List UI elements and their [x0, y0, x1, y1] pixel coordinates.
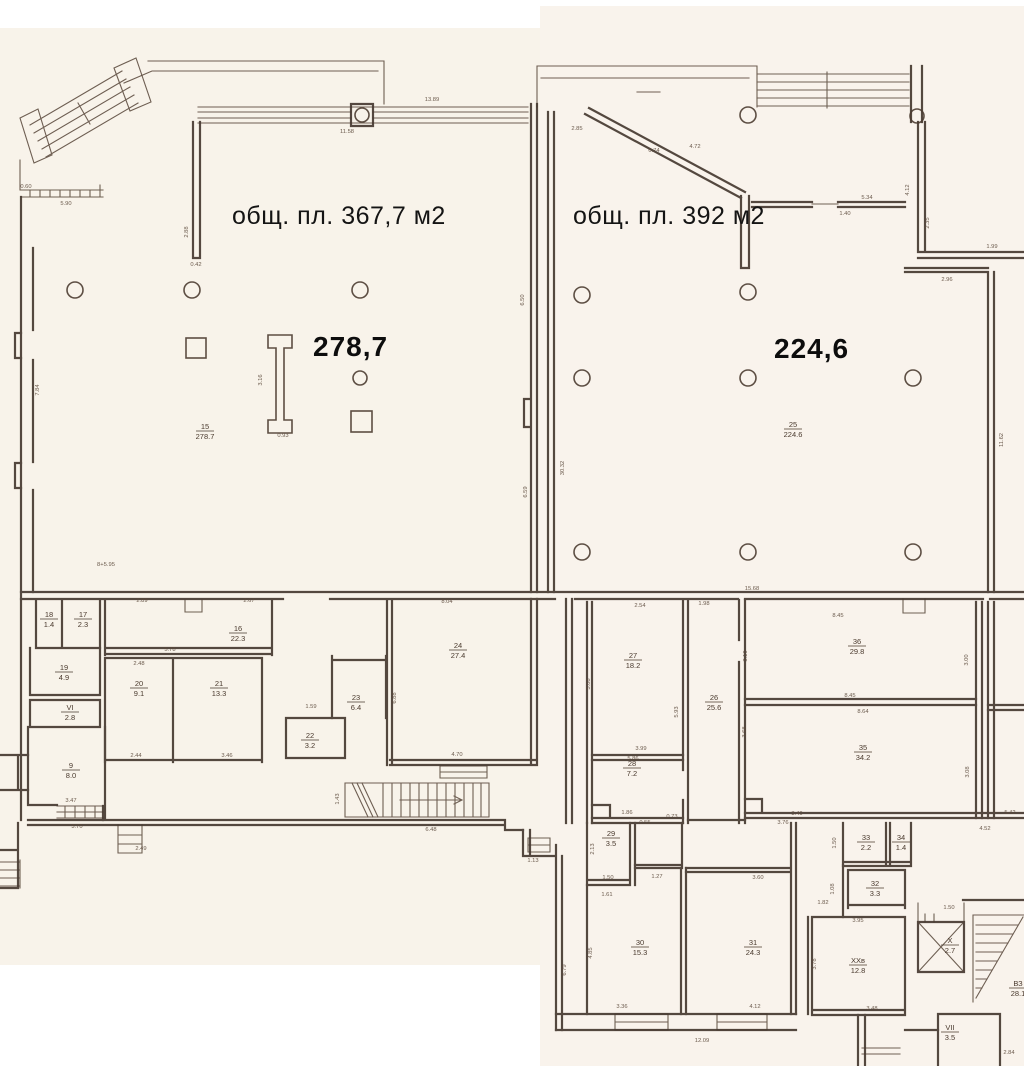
- room-area: 3.2: [305, 741, 315, 750]
- room-area: 1.4: [44, 620, 54, 629]
- room-number: 36: [853, 637, 861, 646]
- room-area: 224.6: [784, 430, 803, 439]
- dimension-label: 5.78: [164, 647, 175, 653]
- dimension-label: 1.50: [943, 905, 954, 911]
- dimension-label: 6.50: [520, 294, 526, 305]
- dimension-label: 2.49: [135, 846, 146, 852]
- room-number: 15: [201, 422, 209, 431]
- dimension-label: 4.12: [905, 184, 911, 195]
- dimension-label: 3.95: [852, 918, 863, 924]
- room-number: 30: [636, 938, 644, 947]
- room-area: 29.8: [850, 647, 865, 656]
- dimension-label: 3.76: [777, 820, 788, 826]
- room-area: 18.2: [626, 661, 641, 670]
- room-number: 19: [60, 663, 68, 672]
- room-number: VII: [945, 1023, 954, 1032]
- room-number: 23: [352, 693, 360, 702]
- dimension-label: 7.84: [35, 384, 41, 396]
- dimension-label: 13.89: [425, 97, 440, 103]
- room-number: ВЗ: [1013, 979, 1023, 988]
- dimension-label: 0.93: [277, 433, 288, 439]
- room-area: 3.5: [606, 839, 616, 848]
- dimension-label: 8.04: [441, 599, 453, 605]
- dimension-label: 6.79: [562, 964, 568, 975]
- dimension-label: 0.73: [666, 814, 677, 820]
- dimension-label: 1.08: [830, 883, 836, 894]
- room-number: 24: [454, 641, 462, 650]
- dimension-label: 4.12: [749, 1004, 760, 1010]
- dimension-label: 2.96: [941, 277, 952, 283]
- room-number: 17: [79, 610, 87, 619]
- room-number: 16: [234, 624, 242, 633]
- room-number: 27: [629, 651, 637, 660]
- dimension-label: 1.50: [602, 875, 613, 881]
- dimension-label: 2.88: [184, 226, 190, 237]
- dimension-label: 4.70: [451, 752, 462, 758]
- room-area: 4.9: [59, 673, 69, 682]
- dimension-label: 1.50: [832, 837, 838, 848]
- dimension-label: 3.48: [866, 1006, 877, 1012]
- room-area: 3.3: [870, 889, 880, 898]
- dimension-label: 3.00: [964, 654, 970, 665]
- room-area: 8.0: [66, 771, 76, 780]
- dimension-label: 2.54: [634, 603, 646, 609]
- dimension-label: 5.90: [60, 201, 71, 207]
- room-area: 3.5: [945, 1033, 955, 1042]
- dimension-label: 1.40: [839, 211, 850, 217]
- dimension-label: 4.52: [979, 826, 990, 832]
- room-area: 22.3: [231, 634, 246, 643]
- room-number: 32: [871, 879, 879, 888]
- dimension-label: 11.62: [999, 433, 1005, 447]
- dimension-label: 3.70: [71, 824, 82, 830]
- dimension-label: 8+5.95: [97, 562, 115, 568]
- room-number: 9: [69, 761, 73, 770]
- room-number: 18: [45, 610, 53, 619]
- room-number: 25: [789, 420, 797, 429]
- dimension-label: 1.27: [651, 874, 662, 880]
- room-number: 35: [859, 743, 867, 752]
- dimension-label: 1.82: [817, 900, 828, 906]
- floor-plan-svg: общ. пл. 367,7 м2 общ. пл. 392 м2 278,7 …: [0, 0, 1024, 1066]
- dimension-label: 3.60: [752, 875, 763, 881]
- dimension-label: 2.67: [243, 598, 254, 604]
- dimension-label: 1.43: [335, 793, 341, 804]
- right-hall-area-label: общ. пл. 392 м2: [573, 202, 765, 230]
- dimension-label: 6.88: [392, 692, 398, 703]
- dimension-label: 2.48: [133, 661, 144, 667]
- dimension-label: 1.86: [621, 810, 632, 816]
- dimension-label: 5.86: [627, 756, 638, 762]
- dimension-label: 11.58: [340, 129, 354, 135]
- dimension-label: 3.99: [635, 746, 646, 752]
- floor-plan-page: общ. пл. 367,7 м2 общ. пл. 392 м2 278,7 …: [0, 0, 1024, 1066]
- room-number: 22: [306, 731, 314, 740]
- room-area: 13.3: [212, 689, 227, 698]
- dimension-label: 1.98: [698, 601, 709, 607]
- dimension-label: 5.08: [586, 678, 592, 689]
- dimension-label: 0.55: [639, 820, 650, 826]
- dimension-label: 1.13: [527, 858, 538, 864]
- dimension-label: 3.36: [616, 1004, 627, 1010]
- dimension-label: 5.34: [861, 195, 873, 201]
- room-area: 12.8: [851, 966, 866, 975]
- left-hall-area-label: общ. пл. 367,7 м2: [232, 202, 446, 230]
- left-hall-area-number: 278,7: [313, 331, 388, 362]
- dimension-label: 0.60: [20, 184, 31, 190]
- room-number: 21: [215, 679, 223, 688]
- dimension-label: 4.85: [588, 947, 594, 958]
- dimension-label: 1.61: [601, 892, 612, 898]
- room-area: 28.1: [1011, 989, 1024, 998]
- room-area: 7.2: [627, 769, 637, 778]
- dimension-label: 3.78: [812, 958, 818, 969]
- dimension-label: 3.40: [791, 811, 802, 817]
- room-area: 24.3: [746, 948, 761, 957]
- dimension-label: 15.68: [745, 586, 760, 592]
- dimension-label: 3.16: [258, 374, 264, 385]
- room-area: 1.4: [896, 843, 906, 852]
- dimension-label: 0.42: [190, 262, 201, 268]
- dimension-label: 12.09: [695, 1038, 710, 1044]
- room-area: 25.6: [707, 703, 722, 712]
- room-number: 34: [897, 833, 905, 842]
- room-number: VI: [66, 703, 73, 712]
- room-area: 15.3: [633, 948, 648, 957]
- dimension-label: 1.59: [305, 704, 316, 710]
- room-number: ХХв: [851, 956, 865, 965]
- room-number: 31: [749, 938, 757, 947]
- room-number: 26: [710, 693, 718, 702]
- dimension-label: 3.08: [965, 766, 971, 777]
- dimension-label: 2.85: [571, 126, 582, 132]
- dimension-label: 4.72: [689, 144, 700, 150]
- room-area: 34.2: [856, 753, 871, 762]
- dimension-label: 3.68: [742, 726, 748, 737]
- room-area: 2.7: [945, 946, 955, 955]
- room-number: 33: [862, 833, 870, 842]
- dimension-label: 3.10: [743, 650, 749, 661]
- room-number: 29: [607, 829, 615, 838]
- dimension-label: 3.47: [65, 798, 76, 804]
- room-area: 9.1: [134, 689, 144, 698]
- dimension-label: 2.84: [1003, 1050, 1015, 1056]
- room-area: 278.7: [196, 432, 215, 441]
- dimension-label: 2.89: [136, 598, 147, 604]
- dimension-label: 2.35: [925, 217, 931, 228]
- dimension-label: 3.46: [221, 753, 232, 759]
- dimension-label: 8.64: [857, 709, 869, 715]
- room-number: 20: [135, 679, 143, 688]
- dimension-label: 30.32: [560, 461, 566, 476]
- room-area: 6.4: [351, 703, 361, 712]
- room-area: 27.4: [451, 651, 466, 660]
- paper-background: [0, 6, 1024, 1066]
- dimension-label: 8.45: [832, 613, 843, 619]
- dimension-label: 2.44: [130, 753, 142, 759]
- dimension-label: 6.59: [523, 486, 529, 497]
- dimension-label: 1.99: [986, 244, 997, 250]
- room-number: Х: [947, 936, 952, 945]
- dimension-label: 8.45: [844, 693, 855, 699]
- dimension-label: 5.42: [1004, 810, 1015, 816]
- room-area: 2.8: [65, 713, 75, 722]
- dimension-label: 2.13: [590, 843, 596, 854]
- room-area: 2.3: [78, 620, 88, 629]
- dimension-label: 0.74: [648, 148, 660, 154]
- dimension-label: 5.93: [674, 706, 680, 717]
- right-hall-area-number: 224,6: [774, 333, 849, 364]
- room-area: 2.2: [861, 843, 871, 852]
- dimension-label: 6.48: [425, 827, 436, 833]
